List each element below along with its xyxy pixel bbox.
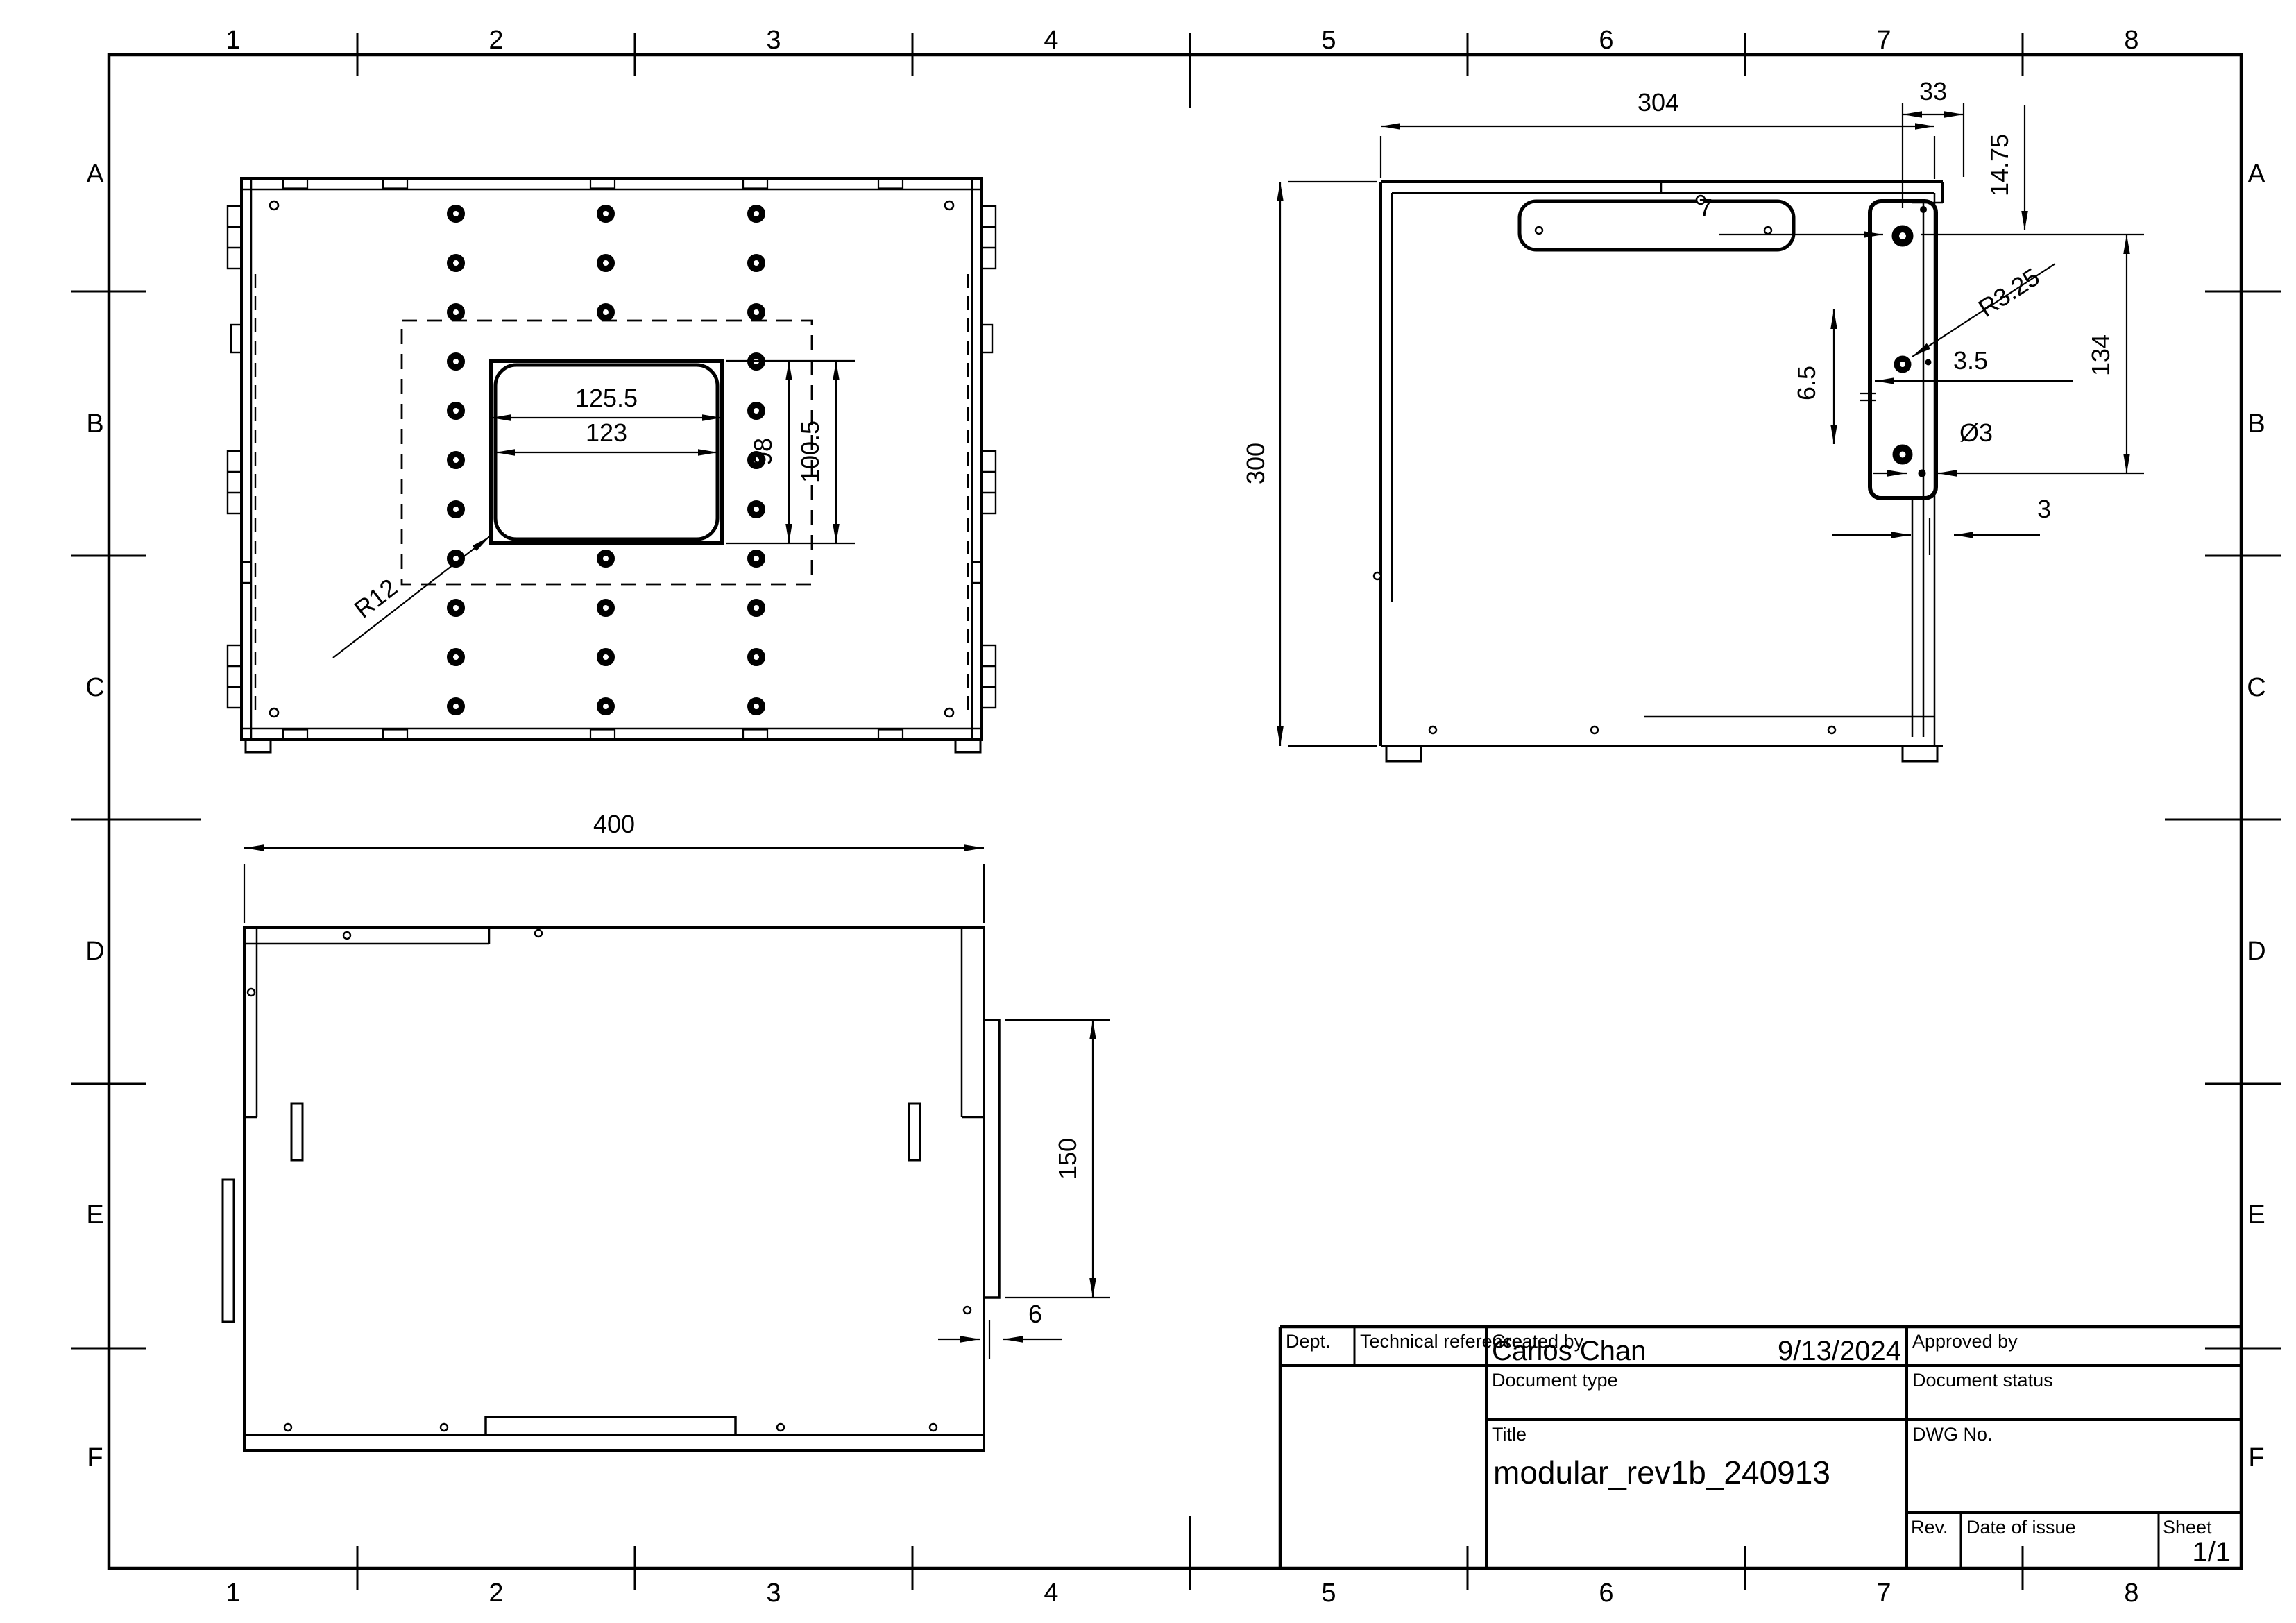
dim-slot-radius: R3.25 bbox=[1973, 262, 2045, 323]
grid-row-label: E bbox=[86, 1200, 103, 1230]
dim-wall-thickness: 6 bbox=[1028, 1300, 1042, 1328]
right-flange bbox=[984, 1020, 999, 1298]
dwg-label: DWG No. bbox=[1912, 1424, 1993, 1445]
dim-hole-offset: 7 bbox=[1699, 194, 1712, 222]
dim-bracket-span: 134 bbox=[2086, 334, 2115, 376]
handle-slot bbox=[1520, 201, 1794, 250]
drawing-sheet: 1 2 3 4 5 6 7 8 1 2 3 4 5 6 7 8 A B C D … bbox=[0, 0, 2296, 1623]
title-value: modular_rev1b_240913 bbox=[1493, 1454, 1830, 1490]
grid-row-label: A bbox=[2247, 160, 2265, 189]
dim-corner-radius: R12 bbox=[349, 573, 402, 624]
dim-tab-width: 33 bbox=[1919, 77, 1947, 105]
dim-hole-pitch: 6.5 bbox=[1792, 366, 1821, 400]
grid-row-label: D bbox=[85, 937, 104, 966]
foot bbox=[246, 740, 271, 752]
foot bbox=[955, 740, 980, 752]
sheet-value: 1/1 bbox=[2192, 1537, 2231, 1567]
top-view bbox=[228, 178, 996, 752]
foot bbox=[1386, 746, 1421, 761]
grid-col-label: 8 bbox=[2124, 26, 2138, 55]
sheet-frame bbox=[71, 33, 2281, 1590]
grid-row-label: F bbox=[2248, 1443, 2264, 1472]
dim-height-outer: 100.5 bbox=[796, 420, 824, 483]
sheet-label: Sheet bbox=[2163, 1517, 2212, 1538]
dim-height-inner: 98 bbox=[749, 438, 777, 466]
grid-col-label: 5 bbox=[1321, 26, 1336, 55]
doc-type-label: Document type bbox=[1492, 1370, 1618, 1391]
grid-row-label: C bbox=[85, 673, 104, 702]
bottom-view-dim-lines bbox=[244, 848, 1110, 1359]
dim-flange-height: 150 bbox=[1053, 1138, 1082, 1180]
dim-width: 400 bbox=[593, 810, 635, 838]
grid-col-label: 5 bbox=[1321, 1579, 1336, 1608]
dim-top-offset: 14.75 bbox=[1985, 134, 2014, 196]
grid-row-label: B bbox=[86, 409, 103, 439]
grid-col-label: 6 bbox=[1599, 1579, 1613, 1608]
dim-hole-gap: 3.5 bbox=[1953, 346, 1988, 375]
rev-label: Rev. bbox=[1911, 1517, 1948, 1538]
left-tab bbox=[223, 1180, 234, 1322]
dim-height: 300 bbox=[1241, 443, 1270, 484]
grid-col-label: 2 bbox=[488, 26, 503, 55]
grid-col-label: 2 bbox=[488, 1579, 503, 1608]
grid-row-label: D bbox=[2247, 937, 2265, 966]
date-of-issue-label: Date of issue bbox=[1966, 1517, 2076, 1538]
foot bbox=[1903, 746, 1937, 761]
slot bbox=[909, 1103, 920, 1160]
bottom-view-dims: 400 150 6 bbox=[593, 810, 1082, 1328]
dim-width-inner: 123 bbox=[586, 418, 627, 447]
grid-row-label: F bbox=[87, 1443, 103, 1472]
bracket-holes bbox=[1892, 206, 1932, 477]
dim-width: 304 bbox=[1638, 88, 1679, 117]
dept-label: Dept. bbox=[1286, 1331, 1331, 1352]
approved-by-label: Approved by bbox=[1912, 1331, 2018, 1352]
doc-status-label: Document status bbox=[1912, 1370, 2053, 1391]
grid-col-label: 4 bbox=[1044, 1579, 1058, 1608]
grid-row-label: E bbox=[2247, 1200, 2265, 1230]
grid-col-label: 7 bbox=[1876, 1579, 1891, 1608]
grid-col-label: 4 bbox=[1044, 26, 1058, 55]
title-block bbox=[1280, 1327, 2241, 1568]
bottom-view bbox=[223, 848, 1110, 1450]
grid-col-label: 6 bbox=[1599, 26, 1613, 55]
dim-width-outer: 125.5 bbox=[575, 384, 638, 412]
side-view-dims: 300 304 33 14.75 7 R3.25 3.5 6.5 Ø3 3 13… bbox=[1241, 77, 2115, 523]
grid-col-label: 3 bbox=[766, 1579, 781, 1608]
drawing-canvas: 1 2 3 4 5 6 7 8 1 2 3 4 5 6 7 8 A B C D … bbox=[0, 0, 2296, 1623]
dim-hole-dia: Ø3 bbox=[1959, 418, 1993, 447]
grid-row-label: A bbox=[86, 160, 104, 189]
slot bbox=[291, 1103, 303, 1160]
grid-row-label: C bbox=[2247, 673, 2265, 702]
grid-col-label: 1 bbox=[226, 26, 240, 55]
grid-col-label: 3 bbox=[766, 26, 781, 55]
bottom-tab bbox=[486, 1417, 735, 1435]
grid-col-label: 1 bbox=[226, 1579, 240, 1608]
grid-row-label: B bbox=[2247, 409, 2265, 439]
created-date: 9/13/2024 bbox=[1778, 1336, 1901, 1366]
created-by-name: Carlos Chan bbox=[1492, 1336, 1646, 1366]
dim-wall-thickness: 3 bbox=[2037, 495, 2051, 523]
edge-clips bbox=[228, 206, 996, 708]
grid-col-label: 8 bbox=[2124, 1579, 2138, 1608]
grid-col-label: 7 bbox=[1876, 26, 1891, 55]
title-label: Title bbox=[1492, 1424, 1527, 1445]
